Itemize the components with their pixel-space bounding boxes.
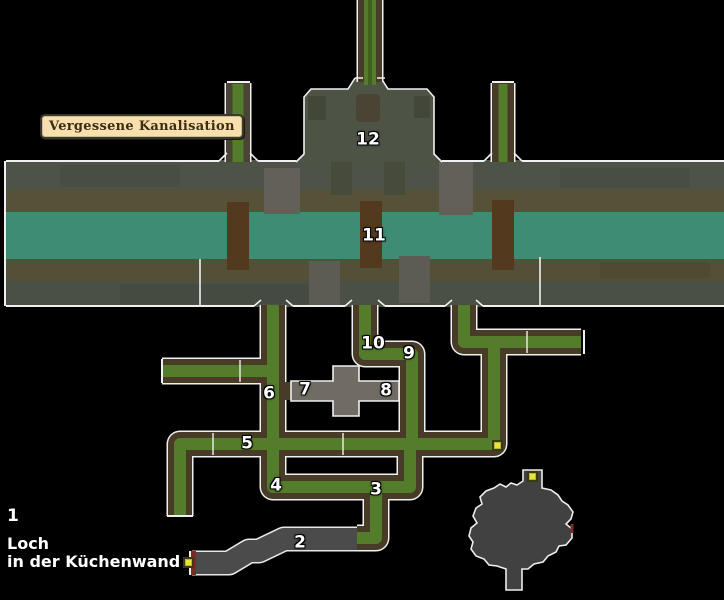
pillar [264,168,300,214]
sewer-map-screen: Vergessene Kanalisation 2 3 4 5 6 7 8 9 … [0,0,724,600]
pillar [331,160,352,195]
sewer-map-canvas [0,0,724,600]
cross-room [282,366,399,416]
door-marker-kitchen-wall [183,557,194,568]
door-marker-cave-entrance [527,471,538,482]
map-point-1: 1 [7,506,19,526]
pillar [309,261,340,306]
bridge-pillar [360,201,382,268]
door-marker-corridor-corner [492,440,503,451]
legend-line-2: in der Küchenwand [7,554,180,570]
bridge-pillar [492,200,514,270]
legend-line-1: Loch [7,536,49,552]
doorway-arch [356,94,380,122]
pillar [399,256,430,303]
pillar [308,96,326,120]
room-12 [296,78,442,162]
kitchen-tunnel [191,539,360,575]
region-label: Vergessene Kanalisation [40,114,244,139]
bridge-pillar [227,202,249,270]
cave-room [469,470,573,590]
pillar [414,96,430,118]
pillar [439,162,473,215]
pillar [384,160,405,195]
